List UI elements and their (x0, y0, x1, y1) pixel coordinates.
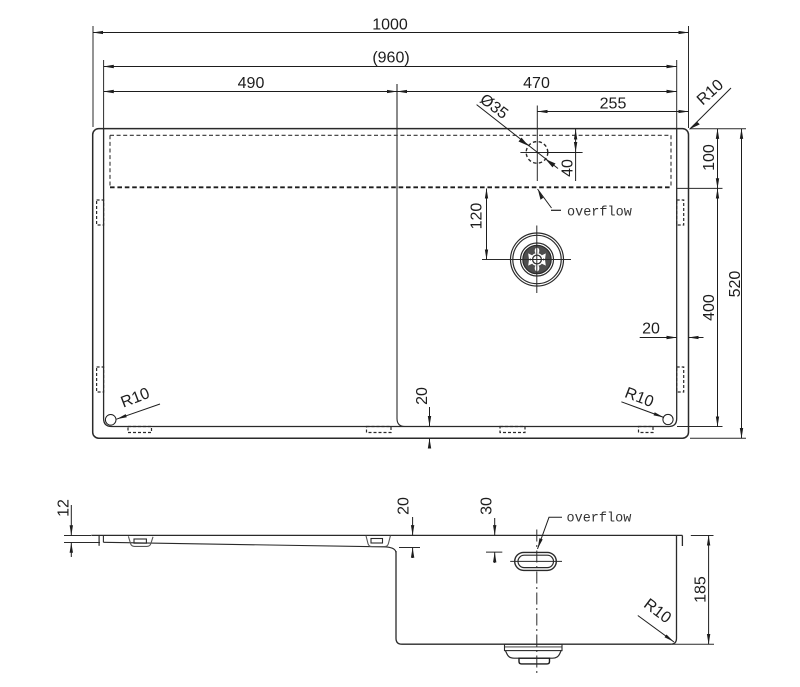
svg-text:R10: R10 (694, 76, 727, 108)
svg-text:520: 520 (727, 271, 744, 298)
svg-text:30: 30 (479, 497, 496, 515)
svg-text:120: 120 (469, 203, 486, 230)
svg-text:R10: R10 (640, 596, 674, 627)
svg-text:12: 12 (56, 499, 73, 517)
svg-text:100: 100 (701, 144, 718, 171)
svg-text:R10: R10 (119, 385, 153, 411)
svg-text:470: 470 (523, 75, 550, 92)
svg-text:(960): (960) (372, 50, 409, 67)
svg-text:40: 40 (560, 159, 577, 177)
svg-text:20: 20 (642, 321, 660, 338)
svg-text:1000: 1000 (372, 17, 408, 34)
svg-text:400: 400 (701, 294, 718, 321)
svg-text:255: 255 (600, 95, 627, 112)
svg-text:185: 185 (693, 576, 710, 603)
svg-text:R10: R10 (622, 385, 656, 411)
svg-text:490: 490 (238, 75, 265, 92)
svg-text:overflow: overflow (567, 512, 632, 527)
svg-text:20: 20 (396, 497, 413, 515)
svg-text:20: 20 (414, 387, 431, 405)
svg-text:overflow: overflow (567, 206, 632, 221)
